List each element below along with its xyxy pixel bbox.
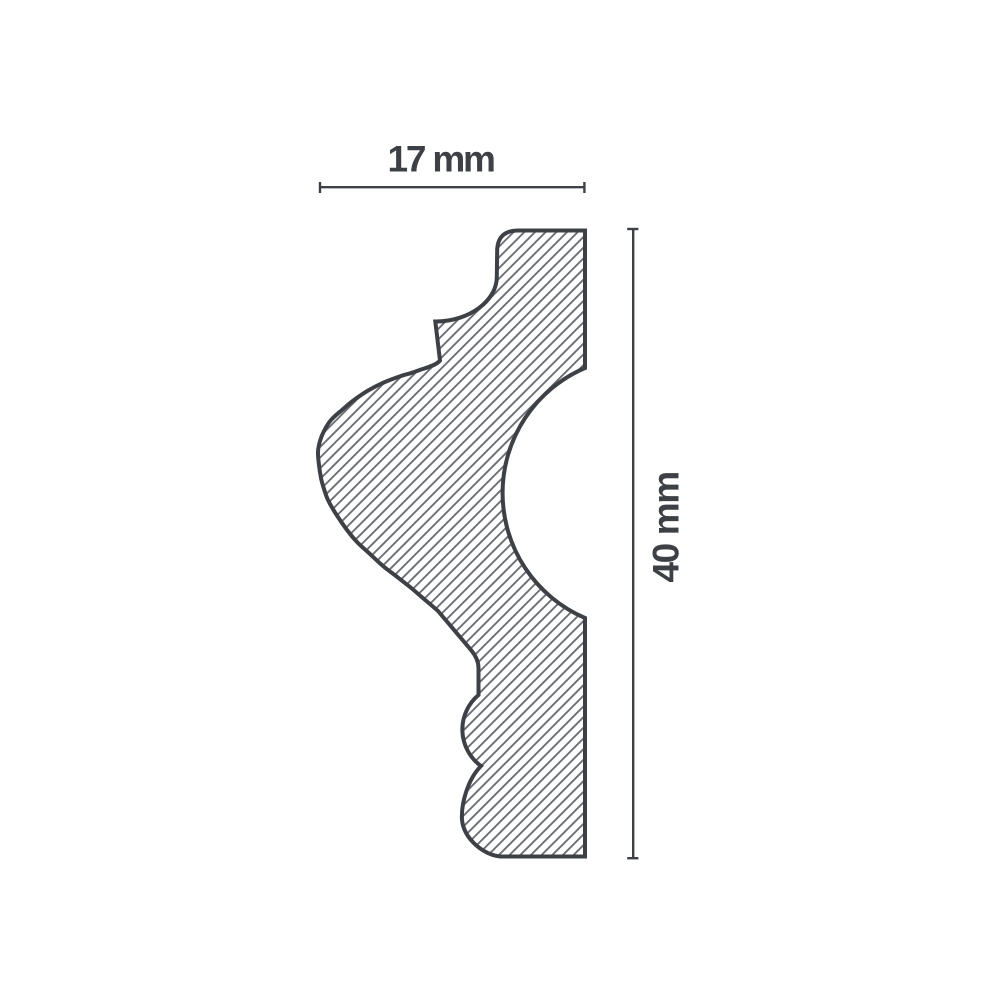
svg-text:17 mm: 17 mm (388, 139, 495, 180)
svg-text:40 mm: 40 mm (646, 472, 687, 582)
